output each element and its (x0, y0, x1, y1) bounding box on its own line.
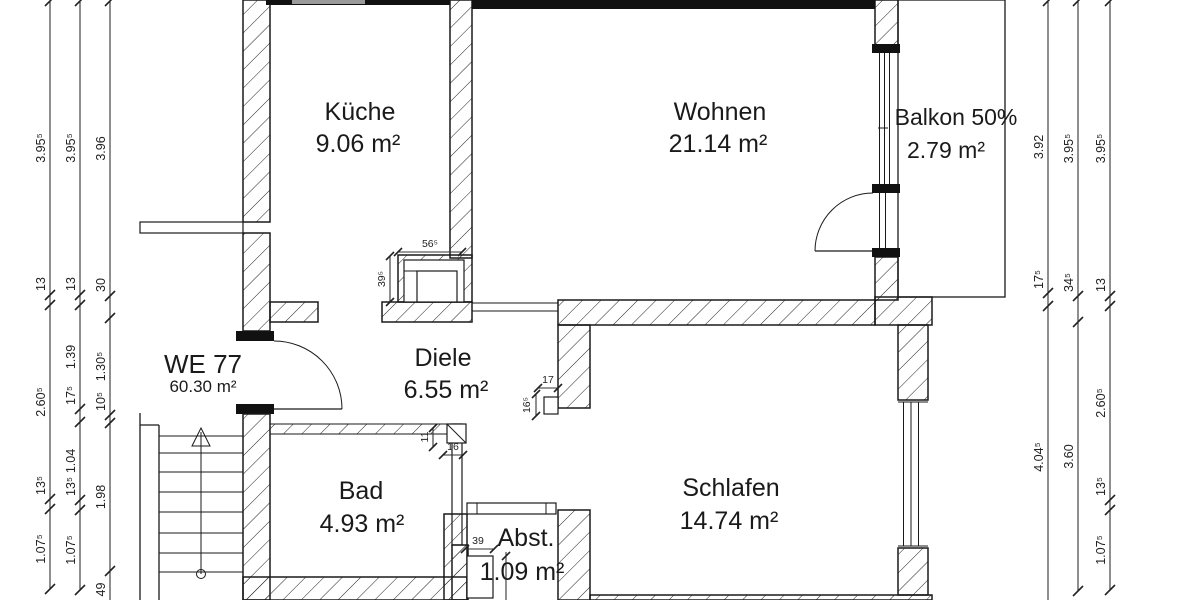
floor-plan-canvas: 56⁵ 39⁵ 17 16⁵ 11 16 39 3.95⁵132.60⁵13⁵1… (0, 0, 1200, 600)
apartment-label: WE 77 (164, 349, 242, 379)
abst-area: 1.09 m² (480, 558, 565, 586)
bad-south-wall (243, 577, 467, 600)
stairwell-wall (140, 222, 243, 233)
wohnen-top-wall (472, 0, 875, 9)
dim-label: 3.96 (94, 136, 108, 160)
dim-label: 3.95⁵ (64, 133, 78, 163)
schlafen-label: Schlafen (682, 474, 779, 502)
dim-label: 49 (94, 583, 108, 597)
dim-label: 13 (34, 277, 48, 291)
dim-label: 17⁵ (1032, 270, 1046, 289)
dim-label: 1.30⁵ (94, 352, 108, 382)
dim-label: 30 (94, 278, 108, 292)
dim-abst-niche: 39 (472, 535, 484, 547)
balkon-label: Balkon 50% (895, 104, 1018, 130)
dim-label: 13⁵ (64, 477, 78, 496)
bad-label: Bad (339, 477, 383, 505)
dim-label: 1.07⁵ (34, 534, 48, 564)
schlafen-area: 14.74 m² (680, 507, 779, 535)
dim-label: 2.60⁵ (34, 387, 48, 417)
dim-label: 17⁵ (64, 386, 78, 405)
entrance-door-frame-top (236, 331, 274, 341)
schlafen-east-wall-top (898, 325, 928, 400)
wall-under-balcony (875, 297, 932, 325)
abst-door (467, 503, 556, 514)
dim-label: 13 (64, 277, 78, 291)
dim-label: 3.60 (1062, 444, 1076, 468)
chimney-duct (404, 260, 464, 302)
dim-duct-width: 17 (542, 374, 554, 386)
dim-label: 1.04 (64, 449, 78, 473)
diele-label: Diele (415, 344, 472, 372)
dim-chimney-height: 39⁵ (376, 271, 388, 287)
dim-label: 3.92 (1032, 135, 1046, 159)
dim-label: 34⁵ (1062, 273, 1076, 292)
balkon-area: 2.79 m² (907, 137, 985, 163)
floor-plan-svg: 56⁵ 39⁵ 17 16⁵ 11 16 39 3.95⁵132.60⁵13⁵1… (0, 0, 1200, 600)
kueche-window (292, 0, 365, 4)
schlafen-south-wall (590, 595, 932, 600)
dim-label: 1.07⁵ (1094, 535, 1108, 565)
dim-label: 3.95⁵ (1094, 134, 1108, 164)
dim-chimney-width: 56⁵ (422, 238, 438, 250)
dim-label: 1.39 (64, 345, 78, 369)
wohnen-label: Wohnen (674, 98, 767, 126)
kueche-label: Küche (325, 98, 396, 126)
dim-label: 3.95⁵ (1062, 134, 1076, 164)
dim-label: 1.98 (94, 485, 108, 509)
kueche-wohnen-wall (450, 0, 472, 258)
bad-area: 4.93 m² (320, 510, 405, 538)
abst-west-wall (444, 514, 467, 600)
wohnen-area: 21.14 m² (669, 130, 768, 158)
dim-label: 13 (1094, 278, 1108, 292)
schlafen-east-wall-bottom (898, 548, 928, 595)
dim-label: 13⁵ (1094, 477, 1108, 496)
dim-label: 1.07⁵ (64, 535, 78, 565)
apartment-area: 60.30 m² (169, 377, 236, 396)
schlafen-wall-duct (544, 397, 558, 414)
dim-label: 2.60⁵ (1094, 388, 1108, 418)
dim-label: 10⁵ (94, 392, 108, 411)
dim-label: 4.04⁵ (1032, 442, 1046, 472)
dim-bad-duct-width: 16 (447, 441, 459, 453)
entrance-door-frame-bottom (236, 404, 274, 414)
kueche-area: 9.06 m² (316, 130, 401, 158)
dim-duct-height: 16⁵ (521, 397, 533, 413)
dim-label: 13⁵ (34, 476, 48, 495)
wohnen-south-wall (558, 300, 875, 325)
abst-label: Abst. (498, 524, 555, 552)
diele-area: 6.55 m² (404, 376, 489, 404)
dim-bad-duct-height: 11 (419, 431, 431, 442)
dim-label: 3.95⁵ (34, 133, 48, 163)
